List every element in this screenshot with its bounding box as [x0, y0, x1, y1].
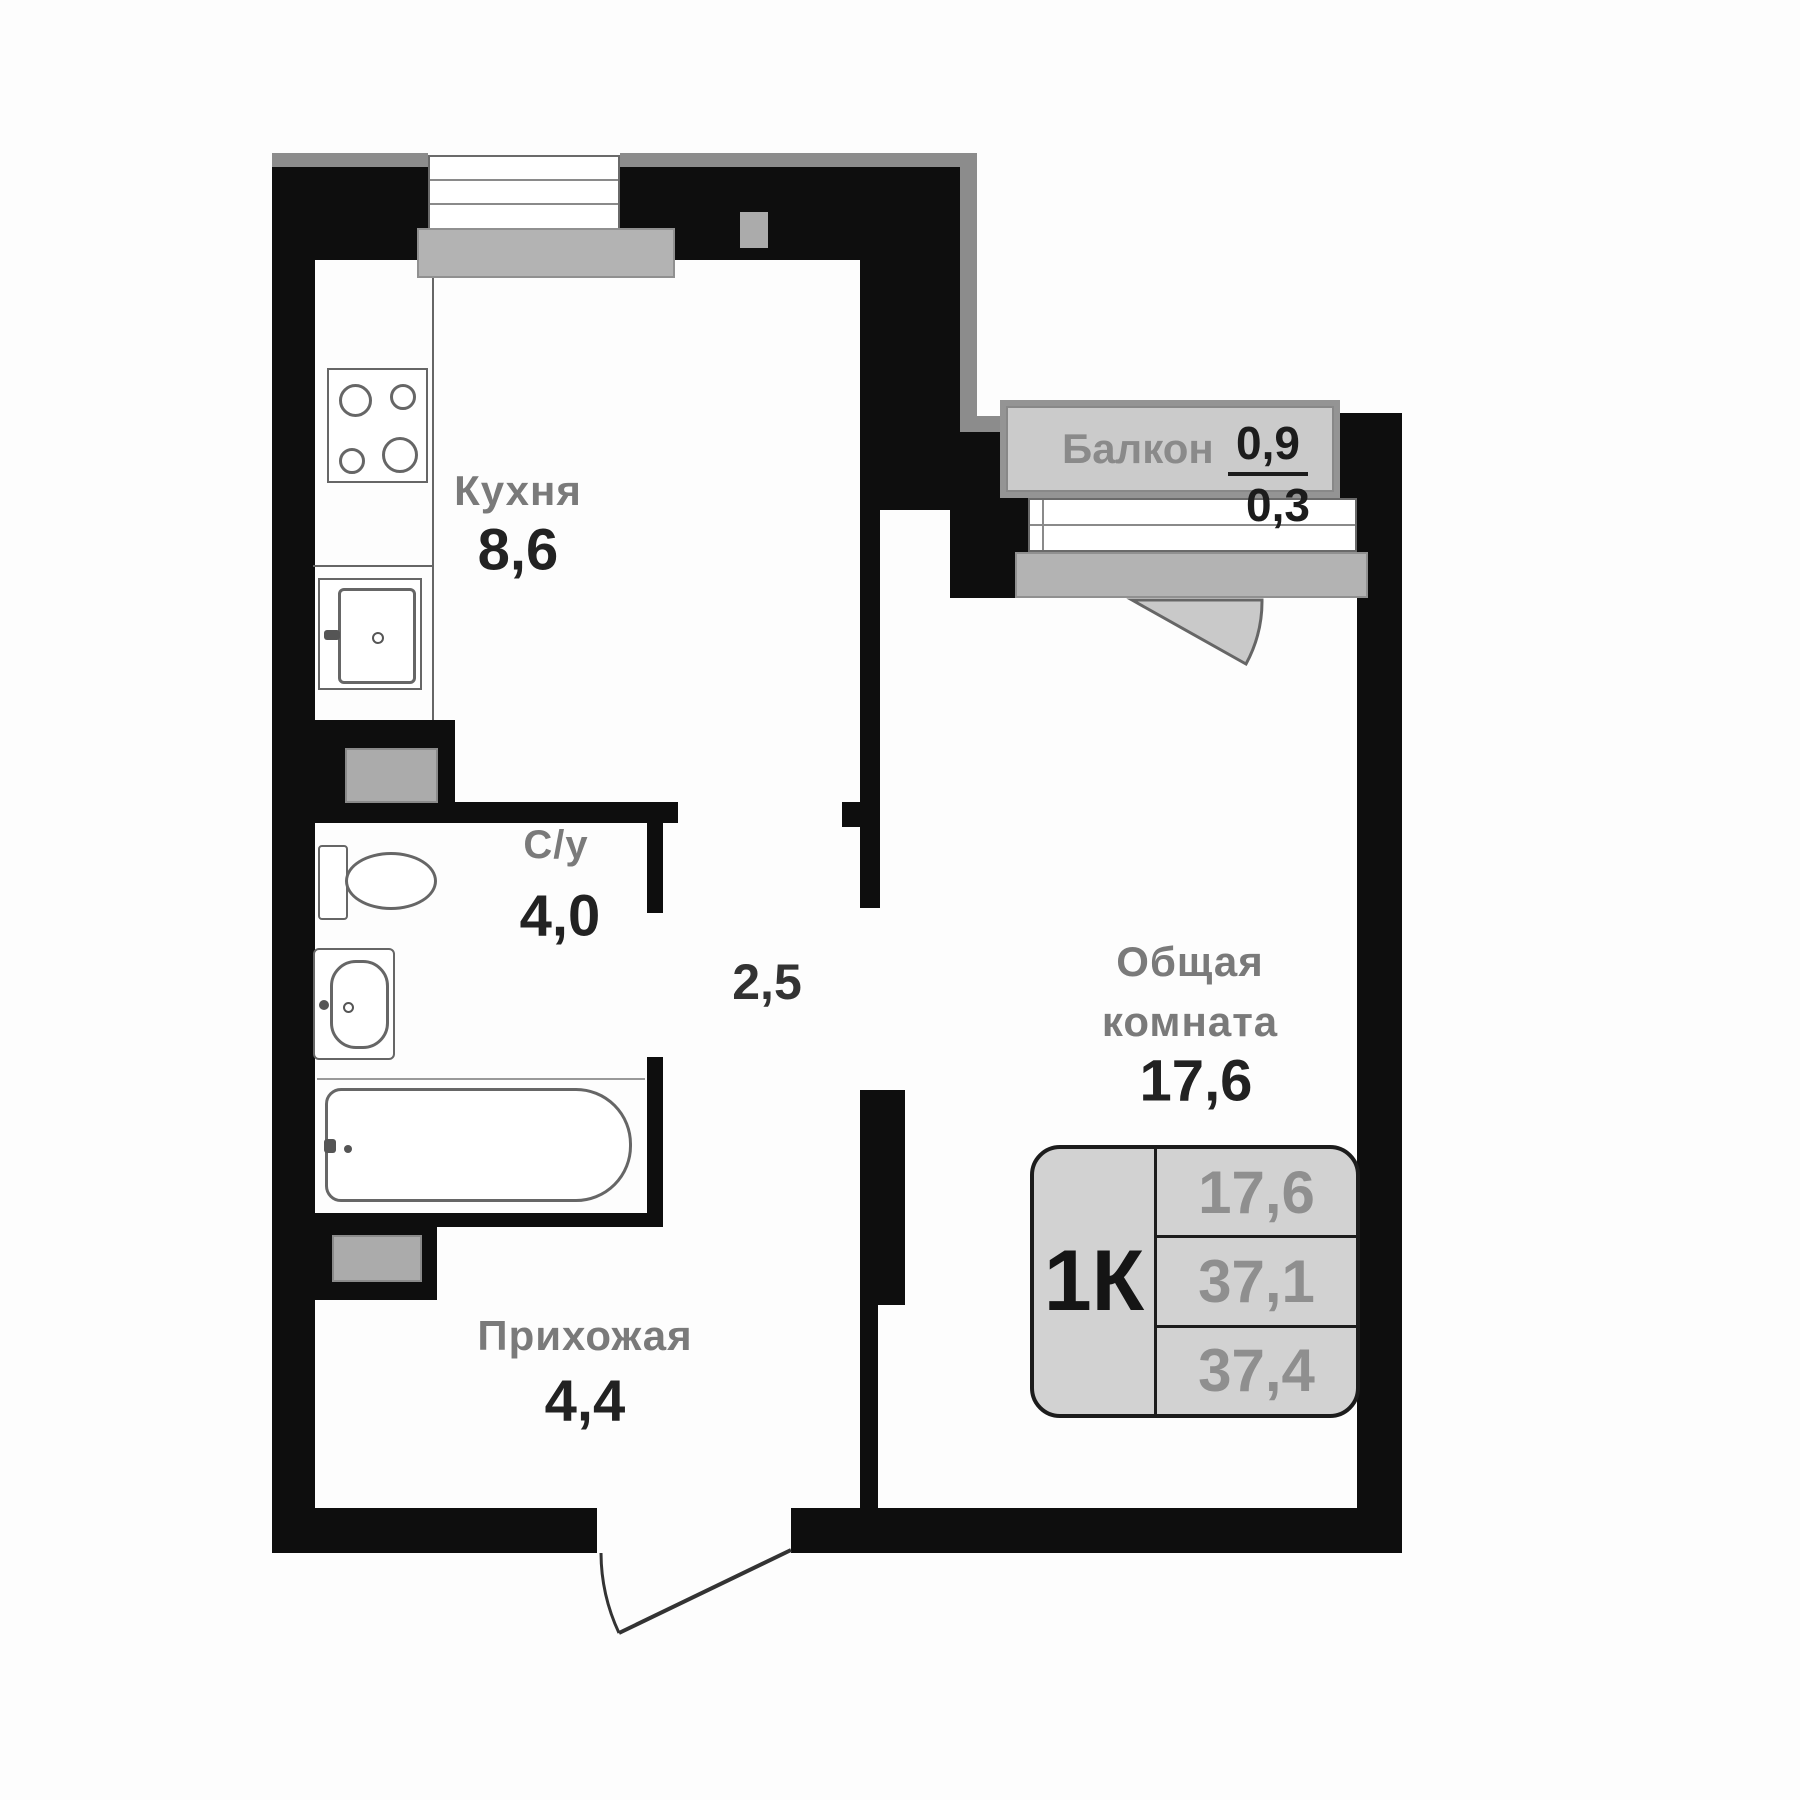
bathtub-icon — [325, 1088, 632, 1202]
wall-bathroom-right-upper — [647, 823, 663, 913]
living-area: 17,6 — [1140, 1052, 1253, 1113]
apartment-info-badge: 1К 17,6 37,1 37,4 — [1030, 1145, 1360, 1418]
badge-room-type: 1К — [1034, 1149, 1157, 1414]
wall-left — [272, 167, 315, 1553]
wall-doorjamb-tick — [842, 802, 860, 827]
kitchen-name: Кухня — [454, 469, 582, 513]
wall-bathroom-bottom — [315, 1213, 647, 1227]
hallway-area: 4,4 — [545, 1372, 626, 1433]
badge-apartment-area: 37,1 — [1157, 1235, 1356, 1324]
entrance-door-icon — [601, 1550, 791, 1633]
wall-inset — [740, 212, 768, 248]
kitchen-area: 8,6 — [478, 521, 559, 582]
kitchen-counter-divider — [313, 565, 432, 567]
toilet-icon — [318, 845, 348, 920]
bathtub-niche-line — [317, 1078, 645, 1080]
balcony-name: Балкон — [1062, 425, 1214, 473]
facade-trim-side — [960, 153, 977, 420]
vent-shaft-icon — [345, 748, 438, 803]
wall-kitchen-exterior — [860, 260, 960, 432]
wall-partition-block — [860, 1090, 905, 1305]
living-name-line2: комната — [1102, 1000, 1278, 1044]
wall-top-left — [272, 167, 430, 260]
badge-living-area: 17,6 — [1157, 1149, 1356, 1235]
wall-bathroom-right-lower — [647, 1057, 663, 1227]
badge-total-area: 37,4 — [1157, 1325, 1356, 1414]
kitchen-window-sill — [417, 228, 675, 278]
toilet-bowl — [345, 852, 437, 910]
balcony-area-full: 0,9 — [1228, 416, 1308, 476]
kitchen-window-icon — [428, 155, 620, 230]
balcony-label-box: Балкон 0,9 0,3 — [1000, 400, 1340, 498]
corridor-area: 2,5 — [732, 956, 802, 1009]
kitchen-sink-icon — [318, 578, 422, 690]
facade-trim-top-right — [620, 153, 977, 167]
balcony-area-fraction: 0,9 0,3 — [1228, 416, 1308, 530]
wall-partition-upper — [860, 510, 880, 908]
sink-icon — [313, 948, 395, 1060]
kitchen-counter-edge — [432, 260, 434, 720]
balcony-door-icon — [1132, 600, 1262, 664]
balcony-area-reduced: 0,3 — [1246, 478, 1310, 532]
wall-bottom-left — [272, 1508, 597, 1553]
vent-shaft-icon — [332, 1235, 422, 1282]
bathroom-name: С/у — [523, 824, 588, 866]
balcony-sill — [1015, 552, 1368, 598]
living-name-line1: Общая — [1116, 940, 1263, 984]
hallway-name: Прихожая — [477, 1314, 692, 1358]
floor-plan: Балкон 0,9 0,3 — [0, 0, 1800, 1800]
wall-partition-lower — [860, 1305, 878, 1508]
bathroom-area: 4,0 — [520, 887, 601, 948]
stove-icon — [327, 368, 428, 483]
wall-bottom-right — [791, 1508, 1402, 1553]
facade-trim-top-left — [272, 153, 428, 167]
